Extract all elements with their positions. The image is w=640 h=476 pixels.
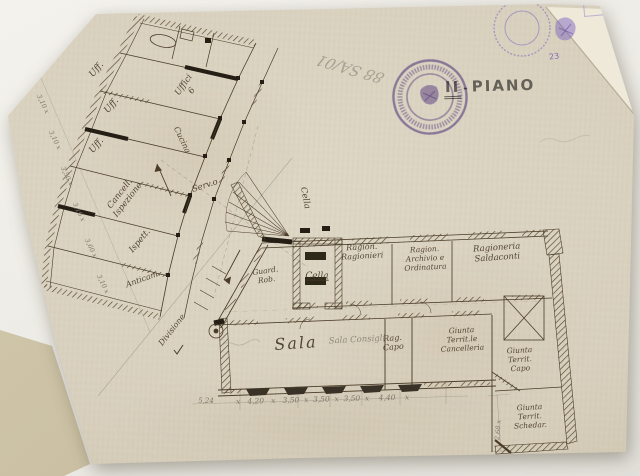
- scanned-floor-plan-photo: Cella Cella Guard. Rob. Ragion. Ragionie…: [0, 0, 640, 476]
- room-label-archivio: Ragion. Archivio e Ordinatura: [403, 245, 446, 274]
- dim-bottom-first: 5,24: [198, 397, 214, 405]
- dim-left-1: 3,40 x: [23, 57, 39, 79]
- dim-right: 2,68 x: [493, 420, 502, 441]
- stamp-graphic: [385, 52, 475, 142]
- corner-number: 23: [548, 51, 559, 61]
- plan-sheet-wrap: Cella Cella Guard. Rob. Ragion. Ragionie…: [0, 0, 640, 476]
- room-label-giunta-schedario: Giunta Territ. Schedar.: [513, 403, 547, 431]
- faint-pencil-note: [540, 135, 590, 142]
- crest-stamp: [555, 17, 575, 40]
- room-label-giunta-cancelleria: Giunta Territ.le Cancelleria: [440, 326, 485, 355]
- room-label-giunta-capo: Giunta Territ. Capo: [507, 346, 534, 374]
- floor-word: PIANO: [472, 76, 536, 96]
- room-label-ragionieri: Ragion. Ragionieri: [340, 241, 383, 262]
- room-label-cella: Cella: [305, 272, 328, 283]
- corner-stamps: [460, 0, 640, 130]
- room-label-guardaroba: Guard. Rob.: [252, 265, 280, 286]
- stamp-crest: [419, 84, 440, 106]
- room-label-rag-capo: Rag. Capo: [382, 333, 404, 354]
- room-label-sala: Sala: [274, 333, 318, 355]
- plan-sheet: Cella Cella Guard. Rob. Ragion. Ragionie…: [0, 0, 640, 476]
- partial-box-stamp: [584, 1, 619, 17]
- round-municipal-stamp: [385, 52, 475, 142]
- room-label-saldaconti: Ragioneria Saldaconti: [473, 241, 522, 264]
- partial-round-stamp: [494, 0, 550, 56]
